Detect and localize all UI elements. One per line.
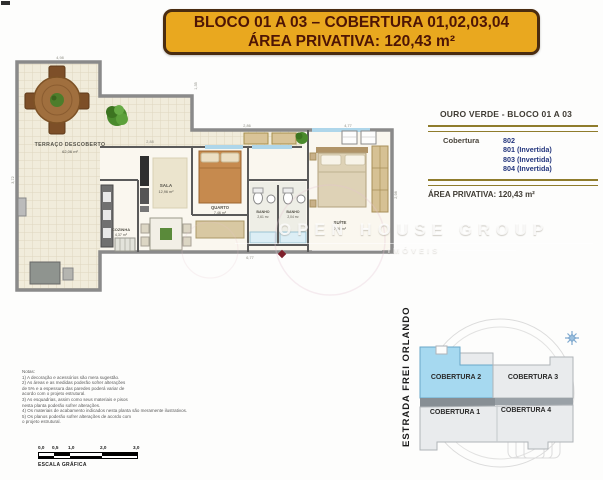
suite-bed	[310, 147, 368, 207]
banner-line-2: ÁREA PRIVATIVA: 120,43 m²	[248, 32, 455, 51]
terraco-label: TERRAÇO DESCOBERTO	[35, 142, 106, 148]
unit-item: 804 (Invertida)	[503, 164, 552, 173]
quarto-label: QUARTO	[211, 205, 230, 210]
shadow-band	[495, 398, 573, 405]
compass-icon	[565, 331, 579, 345]
block-label: COBERTURA 2	[431, 374, 481, 381]
tv-cabinet	[140, 156, 149, 212]
dimension-label: 2,98	[394, 191, 398, 198]
street-label: ESTRADA FREI ORLANDO	[401, 306, 412, 447]
title-banner: BLOCO 01 A 03 – COBERTURA 01,02,03,04 ÁR…	[163, 9, 540, 55]
divider-rule	[428, 125, 598, 132]
banho1-label: BANHO	[256, 210, 269, 214]
cozinha-label: COZINHA	[112, 227, 130, 232]
divider-rule	[428, 179, 598, 186]
graphic-scale: 0,0 0,5 1,0 2,0 3,0 ESCALA GRÁFICA	[38, 445, 148, 471]
scale-bar	[38, 452, 138, 459]
terrace-unit	[18, 198, 26, 216]
dimension-label: 1,35	[194, 82, 198, 89]
unit-item: 801 (Invertida)	[503, 145, 552, 154]
block-notch	[436, 346, 447, 354]
scale-ticks: 0,0 0,5 1,0 2,0 3,0	[38, 445, 148, 451]
service-grid	[115, 238, 135, 251]
suite-wardrobe	[372, 146, 388, 212]
scale-tick: 2,0	[100, 445, 106, 450]
block-label: COBERTURA 1	[430, 409, 480, 416]
note-line: o projeto estrutural.	[22, 419, 187, 425]
shadow-band	[420, 398, 495, 407]
sala-label: SALA	[160, 183, 173, 188]
quarto-bed	[199, 151, 241, 203]
suite-label: SUÍTE	[334, 220, 347, 225]
banho2-label: BANHO	[286, 210, 299, 214]
brochure-page: TERRAÇO DESCOBERTO 62,06 m² SALA 12,96 m…	[0, 0, 603, 480]
floor-plan: TERRAÇO DESCOBERTO 62,06 m² SALA 12,96 m…	[11, 56, 398, 295]
dimension-label: 4,77	[344, 124, 351, 128]
block-label: COBERTURA 3	[508, 374, 558, 381]
unit-list: 802 801 (Invertida) 803 (Invertida) 804 …	[503, 136, 552, 173]
notes-block: Notas: 1) A decoração e acessórios são m…	[22, 369, 187, 425]
banho2-area: 2,04 m²	[287, 215, 299, 219]
terraco-area: 62,06 m²	[62, 149, 78, 154]
block-label: COBERTURA 4	[501, 407, 551, 414]
private-area-label: ÁREA PRIVATIVA: 120,43 m²	[428, 190, 535, 199]
dimension-label: 2,88	[146, 140, 153, 144]
kitchen-counter	[101, 185, 113, 247]
cozinha-area: 4,37 m²	[115, 233, 128, 237]
info-panel: OURO VERDE - BLOCO 01 A 03 Cobertura 802…	[420, 104, 602, 204]
dimension-label: 2,86	[243, 124, 250, 128]
suite-area: 7,90 m²	[334, 227, 347, 231]
sala-area: 12,96 m²	[159, 190, 175, 194]
scale-caption: ESCALA GRÁFICA	[38, 462, 87, 468]
quarto-area: 7,46 m²	[214, 211, 227, 215]
balcony-planters	[244, 132, 308, 144]
banner-line-1: BLOCO 01 A 03 – COBERTURA 01,02,03,04	[194, 13, 509, 32]
unit-type-label: Cobertura	[443, 136, 479, 145]
site-plan: COBERTURA 2 COBERTURA 3 COBERTURA 1 COBE…	[401, 306, 579, 467]
scale-tick: 3,0	[133, 445, 139, 450]
scale-tick: 1,0	[68, 445, 74, 450]
banho1-area: 2,61 m²	[257, 215, 269, 219]
project-title: OURO VERDE - BLOCO 01 A 03	[440, 109, 572, 119]
dimension-label: 6,77	[246, 256, 253, 260]
scale-tick: 0,5	[52, 445, 58, 450]
note-line: 4) Os materiais de acabamento indicados …	[22, 408, 187, 414]
scale-tick: 0,0	[38, 445, 44, 450]
dimension-label: 3,72	[11, 176, 15, 183]
unit-item: 802	[503, 136, 552, 145]
unit-item: 803 (Invertida)	[503, 155, 552, 164]
dimension-label: 4,98	[56, 56, 63, 60]
